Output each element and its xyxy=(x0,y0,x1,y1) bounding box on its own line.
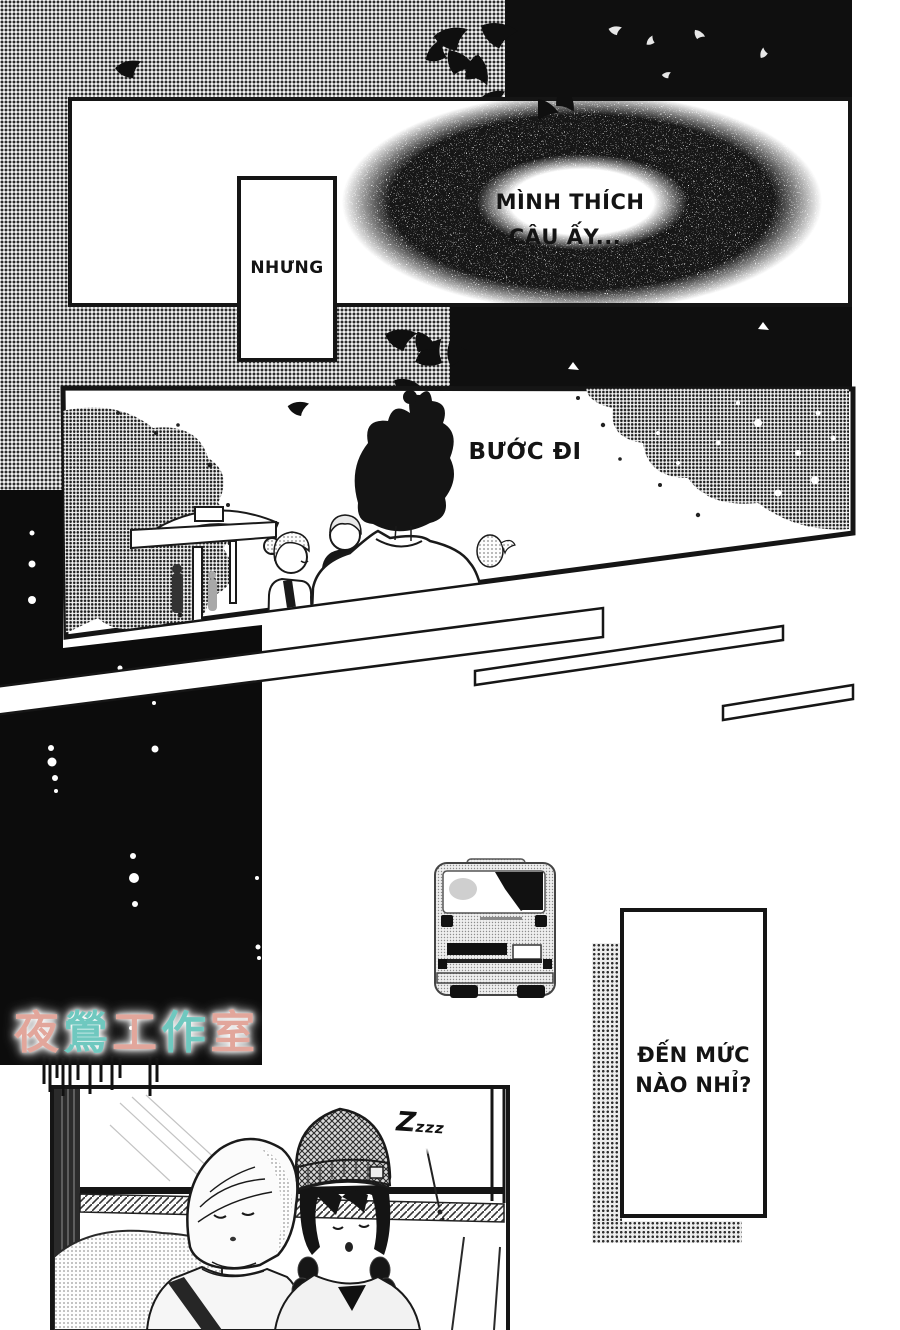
manga-page: MÌNH THÍCH CẬU ẤY... NHƯNG xyxy=(0,0,900,1330)
caption-nhung-text: NHƯNG xyxy=(241,258,333,278)
watermark-char: 鶯 xyxy=(63,1006,112,1059)
caption-buoc-di: BƯỚC ĐI xyxy=(465,438,585,467)
bus-light-left xyxy=(441,915,453,927)
speed-lines-artwork xyxy=(0,590,900,750)
caption-shadow-strip-bottom xyxy=(592,1221,742,1243)
watermark-char: 工 xyxy=(112,1006,161,1059)
margin-halftone-left xyxy=(0,390,63,493)
watermark-char: 作 xyxy=(161,1006,210,1059)
caption-box-nhung: NHƯNG xyxy=(237,176,337,362)
bus-wheel-left xyxy=(450,985,478,998)
leaf-overlap-icon xyxy=(538,84,608,124)
watermark-char: 室 xyxy=(210,1006,259,1059)
bus-rear-illustration xyxy=(425,855,615,1010)
falling-leaf-icon xyxy=(112,48,154,86)
thought-text-line1: MÌNH THÍCH xyxy=(460,189,680,215)
caption-den-muc-line1: ĐẾN MỨC xyxy=(624,1040,763,1070)
bus-wheel-right xyxy=(517,985,545,998)
mid-foliage-band-artwork xyxy=(350,300,852,392)
bus-license-plate xyxy=(513,945,541,959)
beanie-tag xyxy=(370,1167,383,1178)
caption-box-den-muc: ĐẾN MỨC NÀO NHỈ? xyxy=(620,908,767,1218)
bus-light-right xyxy=(535,915,547,927)
caption-den-muc-line2: NÀO NHỈ? xyxy=(624,1070,763,1100)
bus-logo-text xyxy=(480,917,522,920)
watermark: 夜鶯工作室 xyxy=(14,996,259,1061)
sleep-sfx-text: Zzzz xyxy=(392,1106,449,1140)
leaf-cluster-icon xyxy=(421,12,519,100)
watermark-char: 夜 xyxy=(14,1006,63,1059)
thought-text-line2: CẬU ẤY... xyxy=(455,224,675,250)
panel-1: MÌNH THÍCH CẬU ẤY... xyxy=(68,97,852,307)
caption-shadow-strip-vertical xyxy=(592,943,622,1243)
top-foliage-artwork xyxy=(400,0,852,100)
